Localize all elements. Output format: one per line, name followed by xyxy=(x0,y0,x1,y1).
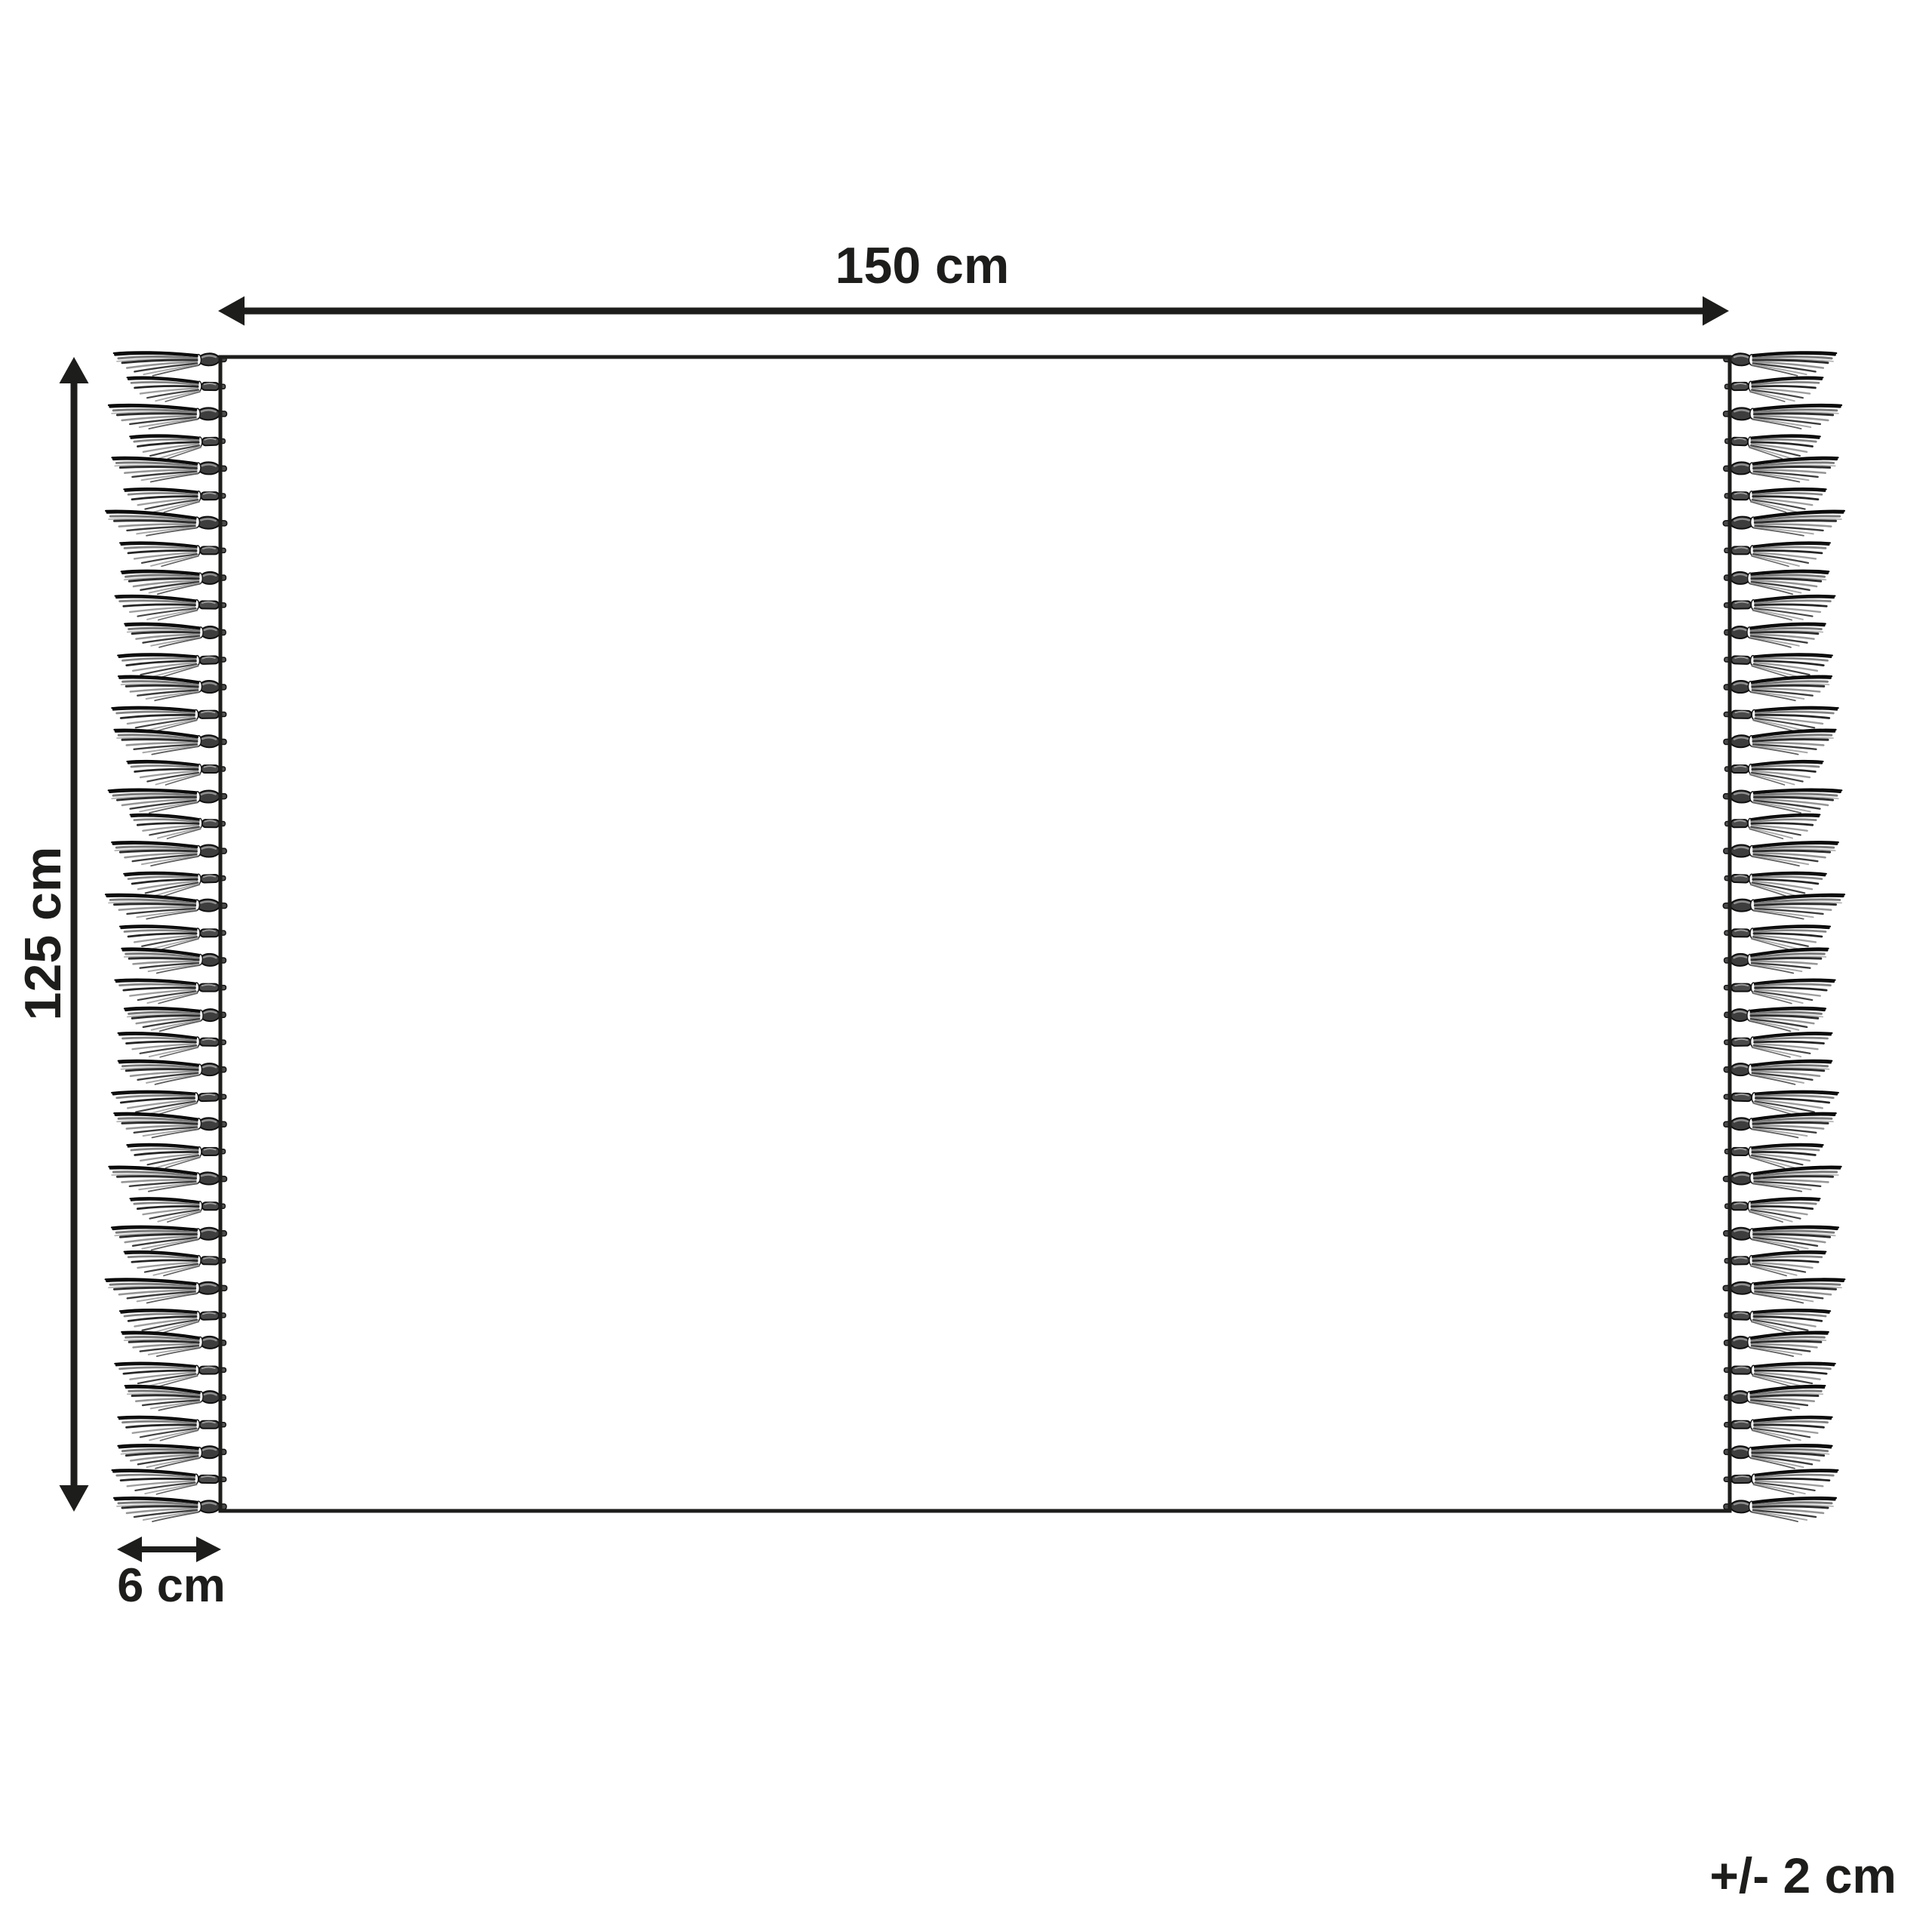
height-dimension-label: 125 cm xyxy=(17,847,69,1021)
width-dimension-label: 150 cm xyxy=(835,240,1010,291)
product-dimension-diagram: 150 cm 125 cm 6 cm +/- 2 cm xyxy=(0,0,1932,1932)
tassels-left xyxy=(105,350,227,1522)
fringe-dimension-arrow xyxy=(117,1537,221,1562)
fringe-dimension-label: 6 cm xyxy=(117,1562,226,1610)
tassels-right xyxy=(1723,350,1845,1522)
width-dimension-arrow xyxy=(218,297,1729,326)
tolerance-label: +/- 2 cm xyxy=(1709,1850,1897,1900)
blanket-outline xyxy=(220,357,1730,1511)
